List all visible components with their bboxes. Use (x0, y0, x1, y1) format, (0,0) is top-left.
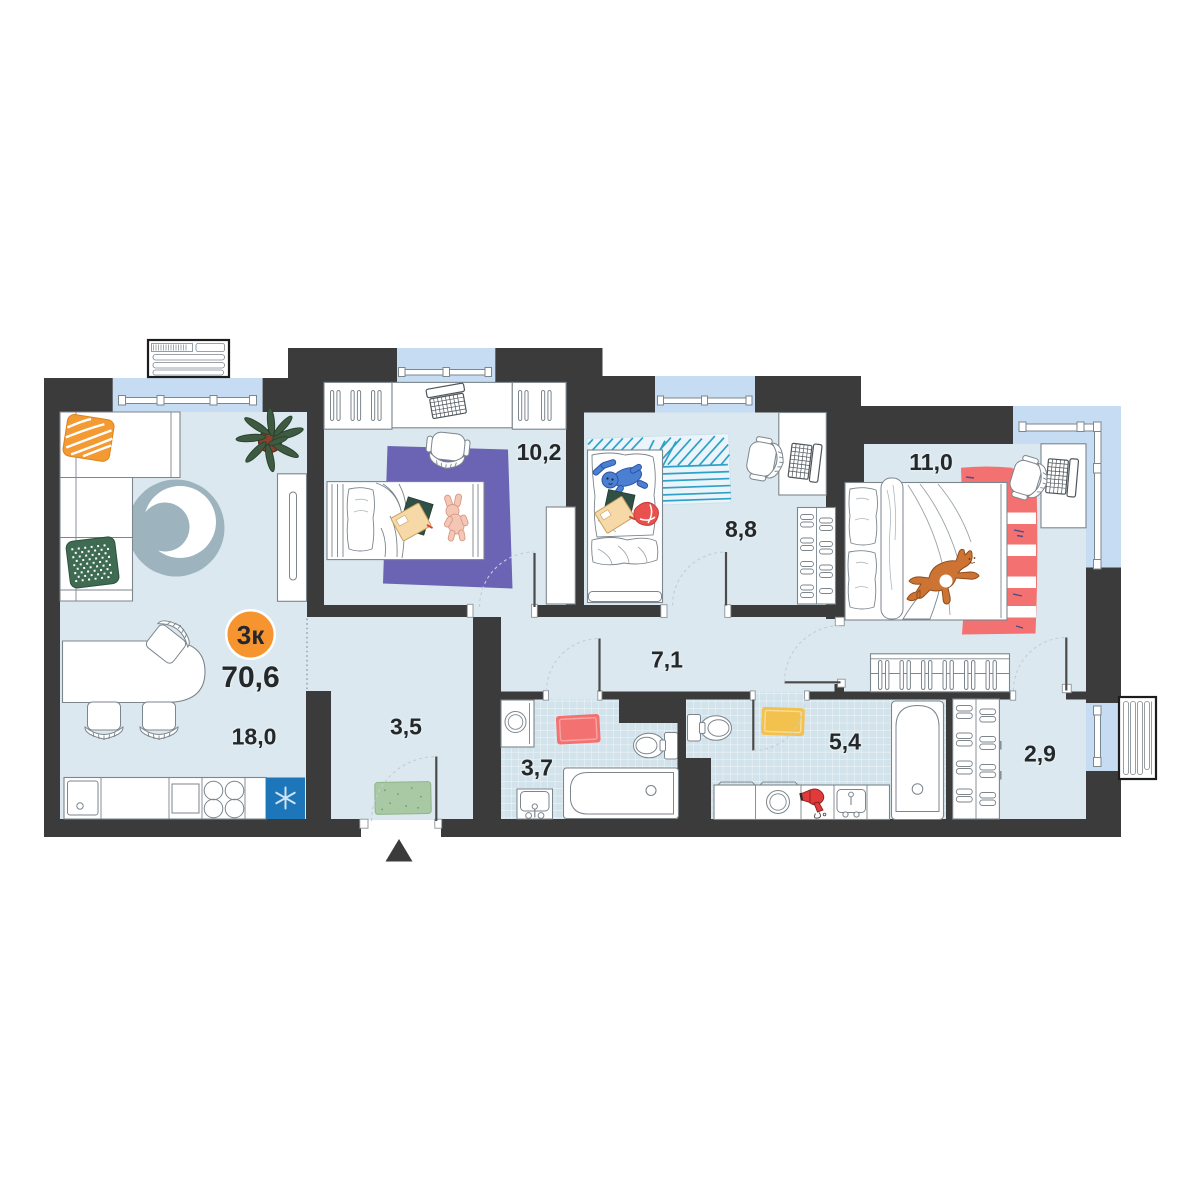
svg-text:5,4: 5,4 (829, 729, 861, 755)
svg-text:2,9: 2,9 (1024, 741, 1056, 767)
svg-text:10,2: 10,2 (517, 439, 562, 465)
svg-text:8,8: 8,8 (725, 516, 757, 542)
svg-text:70,6: 70,6 (221, 661, 279, 694)
svg-text:3,5: 3,5 (390, 714, 422, 740)
svg-text:18,0: 18,0 (232, 724, 277, 750)
svg-text:3к: 3к (237, 620, 265, 650)
svg-text:3,7: 3,7 (521, 755, 553, 781)
svg-text:7,1: 7,1 (651, 647, 683, 673)
svg-text:11,0: 11,0 (909, 449, 953, 475)
